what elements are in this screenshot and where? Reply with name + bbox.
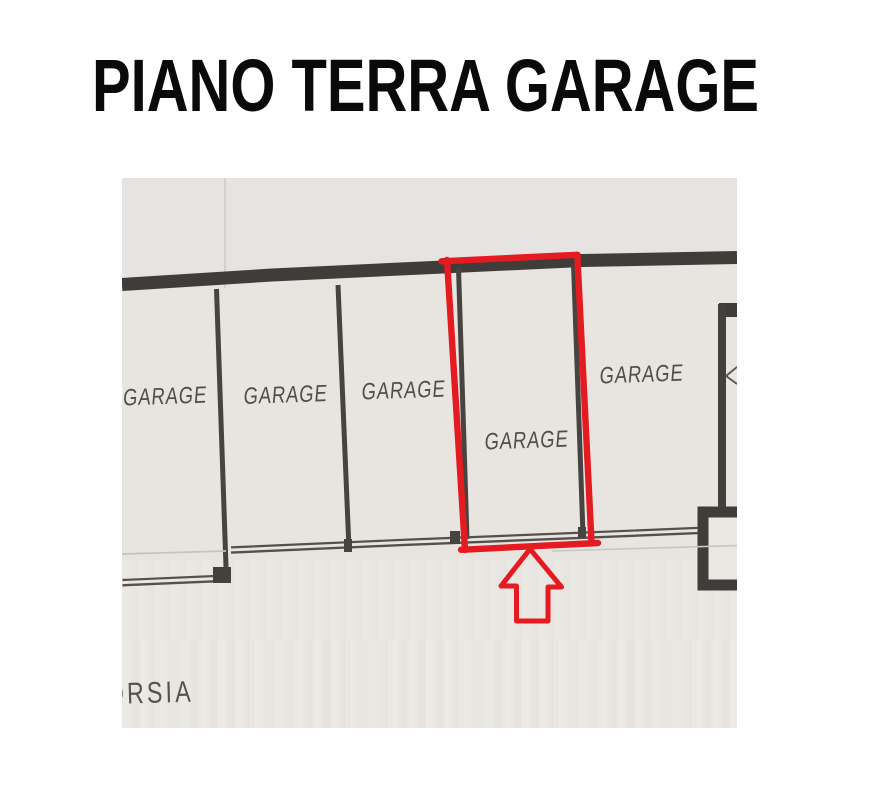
svg-text:GARAGE: GARAGE bbox=[243, 380, 329, 409]
svg-text:GARAGE: GARAGE bbox=[122, 382, 208, 411]
svg-text:GARAGE: GARAGE bbox=[599, 360, 685, 389]
svg-text:GARAGE: GARAGE bbox=[484, 426, 570, 455]
svg-text:ORSIA: ORSIA bbox=[122, 676, 194, 711]
svg-text:GARAGE: GARAGE bbox=[361, 376, 447, 405]
